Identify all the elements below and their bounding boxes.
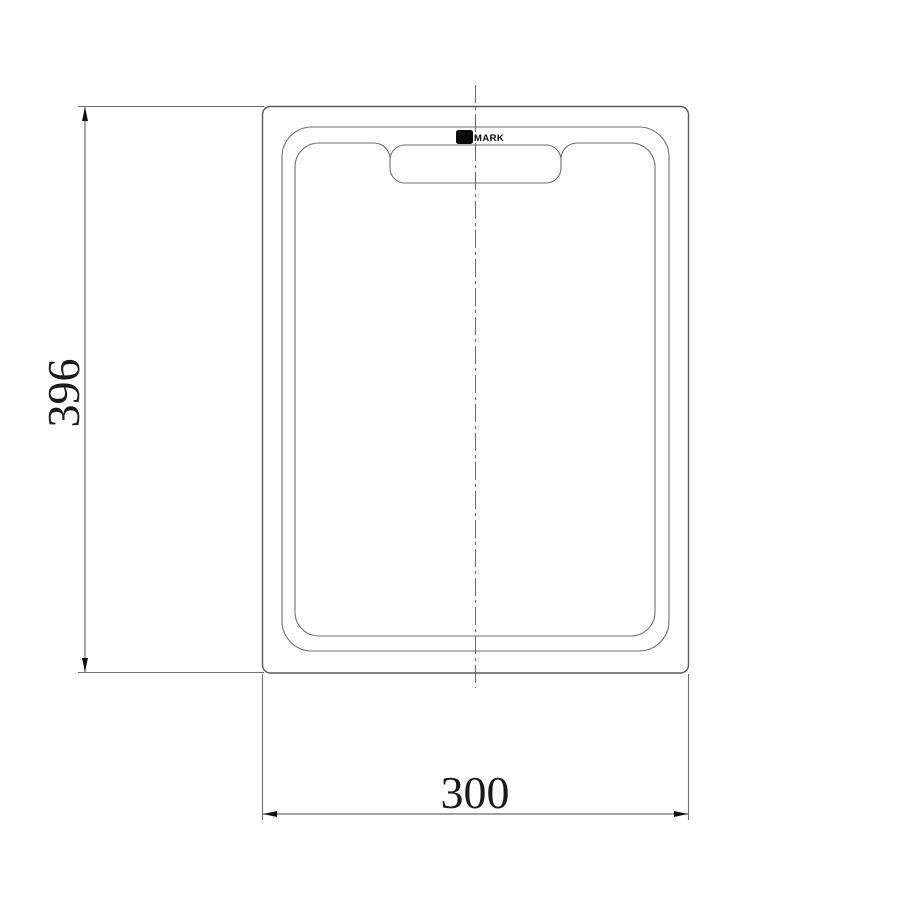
height-dimension-group: 396 (38, 107, 264, 673)
width-dimension-label: 300 (441, 767, 510, 818)
brand-logo-text: MARK (474, 133, 504, 144)
brand-logo-group: MARK (456, 130, 504, 144)
arrow-down-icon (82, 658, 88, 672)
handle-fillet-left (374, 143, 390, 158)
technical-drawing: 396 300 MARK (0, 0, 900, 900)
arrow-right-icon (674, 811, 688, 817)
brand-logo-square-icon (456, 130, 473, 144)
handle-fillet-right (561, 143, 577, 158)
drawing-canvas: 396 300 MARK (0, 0, 900, 900)
height-dimension-label: 396 (38, 359, 89, 428)
arrow-up-icon (82, 107, 88, 121)
width-dimension-group: 300 (263, 674, 689, 820)
arrow-left-icon (263, 811, 277, 817)
